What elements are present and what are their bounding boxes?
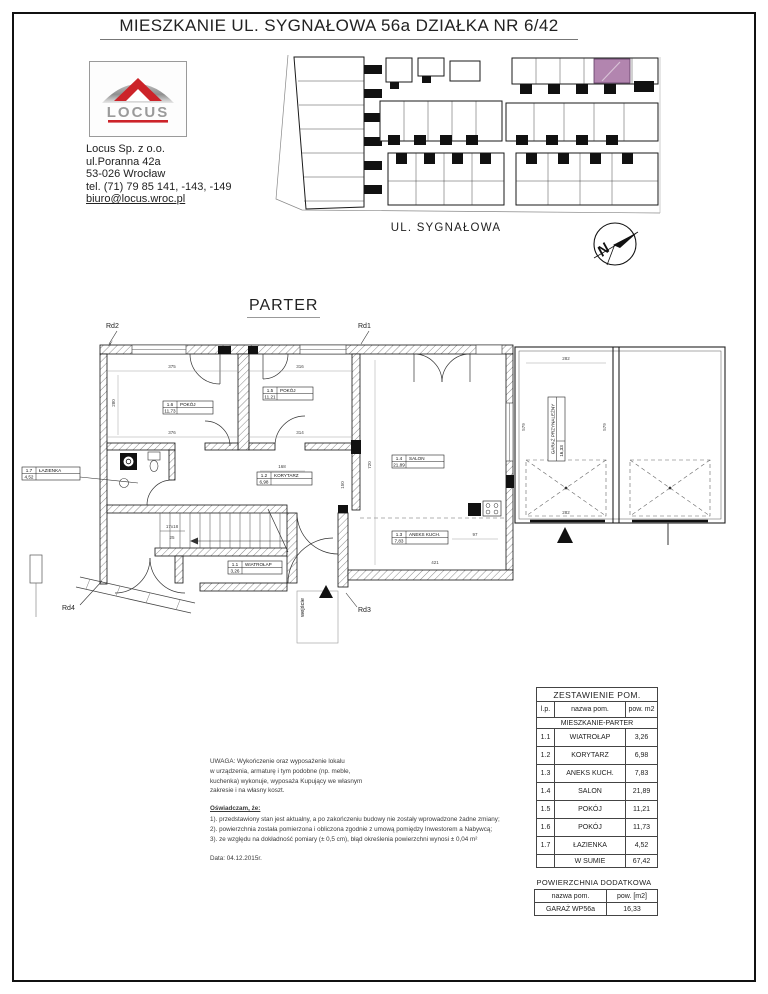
svg-text:POKÓJ: POKÓJ [280, 387, 296, 393]
site-building-lower-right [516, 153, 658, 205]
summary-table-title: ZESTAWIENIE POM. [537, 688, 658, 702]
company-city: 53-026 Wrocław [86, 168, 232, 181]
company-name: Locus Sp. z o.o. [86, 143, 232, 156]
garage: GARAŻ PRZYNALEŻNY 16,33 [515, 347, 725, 545]
floor-plan: 17x18 25 [20, 315, 730, 645]
toilet-icon [148, 452, 160, 460]
sink-icon [120, 479, 129, 488]
dimension-label: 579 [602, 423, 607, 431]
add-col-name: nazwa pom. [535, 890, 607, 903]
logo-underline [108, 120, 168, 123]
entrance-arrow-icon [319, 585, 333, 598]
site-building-upper-middle [380, 58, 502, 145]
table-row: GARAŻ WP56a 16,33 [535, 903, 658, 916]
dimension-label: 314 [296, 430, 304, 435]
site-plan: UL. SYGNAŁOWA [268, 53, 666, 241]
room-label-salon: 1.4 SALON 21,89 [392, 455, 444, 468]
locus-logo-icon: LOCUS [95, 67, 181, 131]
page-title: MIESZKANIE UL. SYGNAŁOWA 56a DZIAŁKA NR … [100, 16, 578, 40]
company-email: biuro@locus.wroc.pl [86, 193, 232, 206]
col-header-lp: l.p. [537, 702, 555, 718]
stairs: 17x18 25 [155, 509, 290, 552]
bathroom-fixtures [120, 452, 161, 488]
room-label-garage: GARAŻ PRZYNALEŻNY 16,33 [548, 397, 565, 461]
svg-text:7,83: 7,83 [395, 539, 404, 544]
dimension-label: 375 [168, 364, 176, 369]
north-arrow-icon: N [585, 218, 645, 273]
dimension-label: 720 [367, 461, 372, 469]
logo-text: LOCUS [107, 104, 170, 121]
svg-text:KORYTARZ: KORYTARZ [274, 473, 299, 478]
summary-table: ZESTAWIENIE POM. l.p. nazwa pom. pow. m2… [536, 687, 658, 868]
dimension-label: 97 [472, 532, 478, 537]
marker-rd3: Rd3 [358, 607, 371, 614]
marker-rd4: Rd4 [62, 605, 75, 612]
room-label-korytarz: 1.2 KORYTARZ 6,98 [257, 472, 312, 485]
table-row: 1.5 POKÓJ 11,21 [537, 801, 658, 819]
svg-text:1.7: 1.7 [26, 468, 33, 473]
dimension-label: 280 [111, 399, 116, 407]
svg-text:1.5: 1.5 [267, 388, 274, 393]
total-label: W SUMIE [555, 855, 626, 868]
col-header-area: pow. m2 [626, 702, 658, 718]
svg-text:3,26: 3,26 [231, 569, 240, 574]
company-address: Locus Sp. z o.o. ul.Poranna 42a 53-026 W… [86, 143, 232, 206]
stairs-width-label: 25 [169, 535, 175, 540]
site-building-lower-left [388, 153, 504, 205]
svg-text:WIATROŁAP: WIATROŁAP [245, 562, 272, 567]
stove-icon [483, 501, 501, 516]
garage-entry-arrow [557, 527, 573, 543]
svg-text:1.2: 1.2 [261, 473, 268, 478]
company-street: ul.Poranna 42a [86, 156, 232, 169]
total-value: 67,42 [626, 855, 658, 868]
site-building-left-row [294, 57, 382, 209]
terrace-edge [30, 555, 195, 617]
dimension-label: 282 [562, 510, 570, 515]
entrance-label: wejście [300, 598, 306, 618]
table-row: 1.7 ŁAZIENKA 4,52 [537, 837, 658, 855]
declaration-note: Oświadczam, że: 1). przedstawiony stan j… [210, 805, 500, 845]
svg-text:4,52: 4,52 [25, 475, 34, 480]
svg-text:GARAŻ PRZYNALEŻNY: GARAŻ PRZYNALEŻNY [549, 404, 555, 455]
svg-text:POKÓJ: POKÓJ [180, 401, 196, 407]
svg-text:1.4: 1.4 [396, 456, 403, 461]
additional-table: nazwa pom. pow. [m2] GARAŻ WP56a 16,33 [534, 889, 658, 916]
room-label-wiatrolap: 1.1 WIATROŁAP 3,26 [228, 561, 282, 574]
marker-rd2: Rd2 [106, 323, 119, 330]
kitchen-sink-icon [468, 503, 481, 516]
plan-markers: Rd2 Rd1 Rd3 Rd4 [62, 323, 371, 614]
kitchen-fixtures [468, 501, 501, 516]
svg-text:6,98: 6,98 [260, 480, 269, 485]
garage-row-name: GARAŻ WP56a [535, 903, 607, 916]
col-header-name: nazwa pom. [555, 702, 626, 718]
dimension-label: 376 [168, 430, 176, 435]
dimension-label: 282 [562, 356, 570, 361]
garage-row-area: 16,33 [607, 903, 658, 916]
svg-text:1.6: 1.6 [167, 402, 174, 407]
room-label-pokoj5: 1.5 POKÓJ 11,21 [263, 387, 313, 400]
apartment-walls [100, 345, 514, 591]
svg-text:11,73: 11,73 [164, 409, 176, 414]
add-col-area: pow. [m2] [607, 890, 658, 903]
table-row: 1.1 WIATROŁAP 3,26 [537, 729, 658, 747]
dimension-label: 579 [521, 423, 526, 431]
company-phone: tel. (71) 79 85 141, -143, -149 [86, 181, 232, 194]
table-section-label: MIESZKANIE-PARTER [537, 718, 658, 729]
uwaga-note: UWAGA: Wykończenie oraz wyposażenie loka… [210, 757, 500, 796]
street-label: UL. SYGNAŁOWA [391, 222, 501, 234]
svg-text:SALON: SALON [409, 456, 425, 461]
table-row: 1.4 SALON 21,89 [537, 783, 658, 801]
company-logo: LOCUS [89, 61, 187, 137]
document-page: { "page": { "title": "MIESZKANIE UL. SYG… [0, 0, 768, 994]
dimension-label: 168 [278, 464, 286, 469]
svg-text:1.1: 1.1 [232, 562, 239, 567]
svg-text:11,21: 11,21 [264, 395, 276, 400]
table-row: 1.2 KORYTARZ 6,98 [537, 747, 658, 765]
notes-block: UWAGA: Wykończenie oraz wyposażenie loka… [210, 757, 500, 862]
table-row: 1.3 ANEKS KUCH. 7,83 [537, 765, 658, 783]
entrance: wejście [297, 585, 338, 643]
additional-table-title: POWIERZCHNIA DODATKOWA [524, 878, 664, 887]
table-row: 1.6 POKÓJ 11,73 [537, 819, 658, 837]
dimension-label: 316 [296, 364, 304, 369]
dimension-label: 421 [431, 560, 439, 565]
stairs-steps-label: 17x18 [166, 524, 179, 529]
declaration-title: Oświadczam, że: [210, 805, 500, 812]
room-label-aneks: 1.3 ANEKS KUCH. 7,83 [392, 531, 448, 544]
marker-rd1: Rd1 [358, 323, 371, 330]
svg-text:21,89: 21,89 [393, 463, 405, 468]
date-label: Data: 04.12.2015r. [210, 855, 500, 862]
site-building-upper-right [506, 58, 658, 145]
svg-text:1.3: 1.3 [396, 532, 403, 537]
svg-text:16,33: 16,33 [559, 445, 564, 457]
table-total-row: W SUMIE 67,42 [537, 855, 658, 868]
svg-text:ŁAZIENKA: ŁAZIENKA [39, 468, 62, 473]
room-label-pokoj6: 1.6 POKÓJ 11,73 [163, 401, 213, 414]
svg-text:ANEKS KUCH.: ANEKS KUCH. [409, 532, 440, 537]
dimension-label: 150 [340, 481, 345, 489]
